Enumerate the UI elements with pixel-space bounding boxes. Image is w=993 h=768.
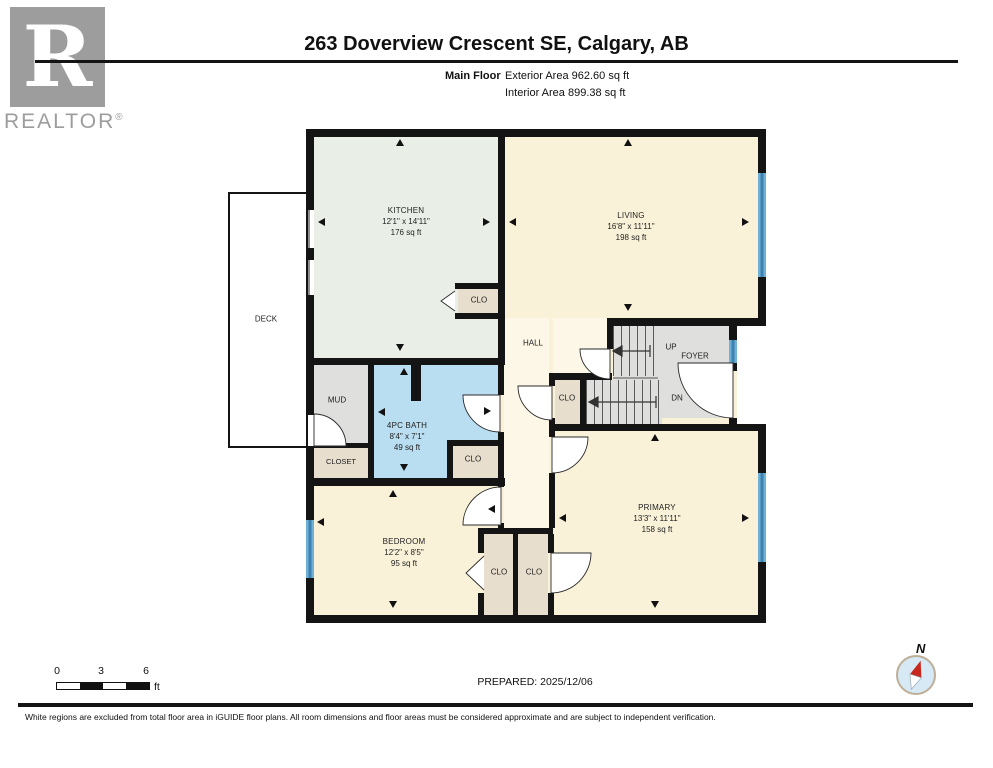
deck-label: DECK <box>255 315 277 326</box>
wall-clo-dn <box>580 380 586 424</box>
wall-mud-bath <box>368 365 374 478</box>
hall-label: HALL <box>523 339 543 350</box>
primary-dims: 13'3" x 11'11" <box>633 514 680 525</box>
compass-needle <box>898 657 934 693</box>
closet-label: CLOSET <box>326 457 356 467</box>
wall-exterior-right-4 <box>758 562 766 623</box>
scale-bar <box>56 682 150 690</box>
scale-seg-2 <box>80 683 103 689</box>
patio-door-mullion <box>306 248 314 260</box>
wall-living-bottom <box>607 318 766 326</box>
wall-bath-bedroom <box>306 478 505 486</box>
realtor-wordmark: REALTOR® <box>4 110 125 134</box>
compass-icon <box>896 655 936 695</box>
wall-bedclo-left-a <box>478 534 484 553</box>
kitchen-label: KITCHEN 12'1" x 14'11" 176 sq ft <box>382 206 430 238</box>
exterior-notch <box>737 318 766 426</box>
realtor-logo: R <box>10 7 105 107</box>
wall-stairs-left <box>607 326 613 349</box>
wall-exterior-left-4 <box>306 578 314 623</box>
scale-tick-6: 6 <box>143 665 149 677</box>
bath-name: 4PC BATH <box>387 421 427 432</box>
kitchen-dims: 12'1" x 14'11" <box>382 217 430 228</box>
hall-floor-stair-landing <box>553 318 607 373</box>
wall-clo-mid <box>513 534 518 615</box>
dim-arrow-bedroom-down <box>389 601 397 608</box>
wall-hallclo-top <box>549 373 612 380</box>
clo-label-bedroom: CLO <box>491 568 507 579</box>
dim-arrow-living-down <box>624 304 632 311</box>
wall-bath-stub <box>411 365 421 401</box>
wall-kitchen-hall <box>498 137 505 362</box>
dim-arrow-kitchen-left <box>318 218 325 226</box>
bedroom-dims: 12'2" x 8'5" <box>383 548 426 559</box>
foyer-label: FOYER <box>681 352 709 363</box>
wall-exterior-right-3 <box>758 424 766 473</box>
bath-label: 4PC BATH 8'4" x 7'1" 49 sq ft <box>387 421 427 453</box>
dim-arrow-living-right <box>742 218 749 226</box>
wall-foyer-right-1 <box>729 318 737 340</box>
exterior-area: Exterior Area 962.60 sq ft <box>505 70 629 82</box>
dim-arrow-bath-right <box>484 407 491 415</box>
wall-hall-west-2 <box>498 432 504 487</box>
wall-kitchenclo-bottom <box>455 313 498 319</box>
dim-arrow-primary-right <box>742 514 749 522</box>
bath-dims: 8'4" x 7'1" <box>387 432 427 443</box>
window-foyer <box>729 340 737 363</box>
header-rule <box>35 60 958 63</box>
wall-hall-primary-1 <box>549 431 555 437</box>
mud-label: MUD <box>328 396 346 407</box>
stair-dn-treads <box>586 380 662 424</box>
registered-mark: ® <box>115 112 124 123</box>
dim-arrow-bath-down <box>400 464 408 471</box>
wall-foyer-right-2 <box>729 363 737 371</box>
dim-arrow-bath-up <box>400 368 408 375</box>
stair-landing-line <box>613 377 658 379</box>
wall-hall-west-1 <box>498 362 504 395</box>
dim-arrow-primary-down <box>651 601 659 608</box>
scale-seg-3 <box>103 683 126 689</box>
dim-arrow-bedroom-up <box>389 490 397 497</box>
wall-bedclo-left-b <box>478 593 484 615</box>
living-dims: 16'8" x 11'11" <box>607 222 654 233</box>
primary-name: PRIMARY <box>633 503 680 514</box>
wall-exterior-right-1 <box>758 129 766 173</box>
prepared-date: PREPARED: 2025/12/06 <box>400 676 670 688</box>
scale-tick-3: 3 <box>98 665 104 677</box>
floor-label: Main Floor <box>445 70 501 82</box>
wall-exterior-bottom <box>306 615 766 623</box>
wall-hall-primary-2 <box>549 473 555 528</box>
dim-arrow-kitchen-down <box>396 344 404 351</box>
wall-kitchenclo-top <box>455 283 498 289</box>
kitchen-floor <box>314 137 498 358</box>
wall-exterior-top <box>306 129 766 137</box>
page-title: 263 Doverview Crescent SE, Calgary, AB <box>0 33 993 56</box>
scale-seg-4 <box>126 683 149 689</box>
realtor-logo-letter: R <box>23 15 93 99</box>
wall-foyer-right-3 <box>729 418 737 431</box>
kitchen-area: 176 sq ft <box>382 227 430 238</box>
interior-area: Interior Area 899.38 sq ft <box>505 87 625 99</box>
window-primary <box>758 473 766 562</box>
wall-priclo-right-b <box>548 593 554 615</box>
wall-hallclo-left-a <box>549 380 555 386</box>
dim-arrow-primary-left <box>559 514 566 522</box>
window-living <box>758 173 766 277</box>
dim-arrow-bedroom-left <box>317 518 324 526</box>
scale-seg-1 <box>57 683 80 689</box>
scale-tick-0: 0 <box>54 665 60 677</box>
clo-label-hall: CLO <box>559 394 575 405</box>
dim-arrow-kitchen-right <box>483 218 490 226</box>
primary-label: PRIMARY 13'3" x 11'11" 158 sq ft <box>633 503 680 535</box>
living-label: LIVING 16'8" x 11'11" 198 sq ft <box>607 211 654 243</box>
wall-exterior-left-2 <box>306 295 314 415</box>
wall-mud-closet <box>314 443 368 448</box>
living-area: 198 sq ft <box>607 232 654 243</box>
realtor-wordmark-text: REALTOR <box>4 110 115 133</box>
window-bedroom <box>306 520 314 578</box>
wall-kitchen-bottom <box>306 358 505 365</box>
hall-floor <box>504 318 549 528</box>
dim-arrow-bedroom-right <box>488 505 495 513</box>
clo-label-kitchen: CLO <box>471 296 487 307</box>
bath-area: 49 sq ft <box>387 442 427 453</box>
bedroom-name: BEDROOM <box>383 537 426 548</box>
living-name: LIVING <box>607 211 654 222</box>
dim-arrow-kitchen-up <box>396 139 404 146</box>
scale-unit: ft <box>154 681 160 693</box>
clo-label-primary: CLO <box>526 568 542 579</box>
dim-arrow-living-left <box>509 218 516 226</box>
dim-arrow-living-up <box>624 139 632 146</box>
primary-area: 158 sq ft <box>633 524 680 535</box>
bedroom-area: 95 sq ft <box>383 558 426 569</box>
stair-up-label: UP <box>665 343 676 354</box>
wall-priclo-right-a <box>548 534 554 553</box>
wall-exterior-left-1 <box>306 129 314 210</box>
clo-label-bath: CLO <box>465 455 481 466</box>
wall-bathclo-top <box>447 440 498 446</box>
floor-plan-page: R REALTOR® 263 Doverview Crescent SE, Ca… <box>0 0 993 768</box>
footer-disclaimer: White regions are excluded from total fl… <box>25 712 716 722</box>
dim-arrow-bath-left <box>378 408 385 416</box>
stair-dn-label: DN <box>671 394 683 405</box>
kitchen-name: KITCHEN <box>382 206 430 217</box>
bedroom-label: BEDROOM 12'2" x 8'5" 95 sq ft <box>383 537 426 569</box>
footer-rule <box>18 703 973 707</box>
stair-up-treads <box>613 326 658 376</box>
dim-arrow-primary-up <box>651 434 659 441</box>
compass-north-label: N <box>916 641 925 656</box>
